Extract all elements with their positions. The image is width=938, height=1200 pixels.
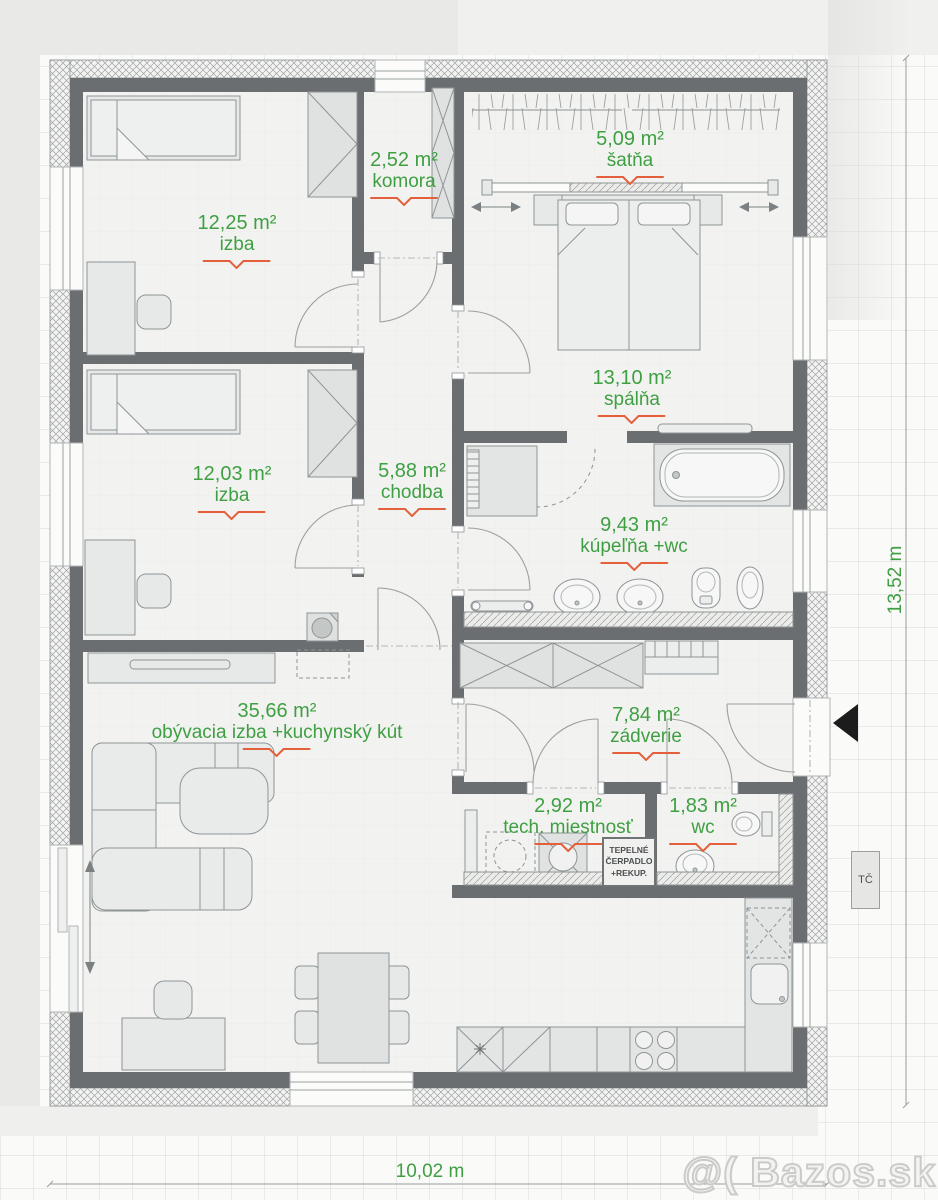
label-underline [599,561,669,571]
terrace-sliding-door [50,845,83,1012]
room-label-wc: 1,83 m² wc [668,795,738,852]
floor-plan-drawing [0,0,938,1200]
room-area: 1,83 m² [668,795,738,817]
room-name: izba [198,235,277,256]
window-izba-1 [50,167,83,290]
label-underline [202,259,272,269]
room-label-zadverie: 7,84 m² zádverie [610,704,682,761]
room-name: spálňa [593,390,672,411]
label-underline [242,747,312,757]
room-name: chodba [377,483,447,504]
outdoor-unit-box: TČ [851,851,880,909]
stove [307,613,338,641]
label-underline [668,842,738,852]
entrance-opening [793,698,830,776]
room-area: 12,03 m² [193,463,272,485]
window-spalna [793,237,827,360]
room-label-izba-2: 12,03 m² izba [193,463,272,520]
label-underline [597,414,667,424]
room-area: 13,10 m² [593,367,672,389]
room-area: 35,66 m² [152,700,403,722]
dimension-height: 13,52 m [885,546,907,615]
kitchen-sink [751,964,788,1004]
room-label-obyvacia: 35,66 m² obývacia izba +kuchynský kút [152,700,403,757]
room-area: 2,92 m² [503,795,633,817]
room-area: 5,88 m² [377,460,447,482]
bidet [737,567,763,609]
room-name: zádverie [610,727,682,748]
window-kitchen [793,943,827,1027]
room-name: wc [668,818,738,839]
room-area: 2,52 m² [369,149,439,171]
outdoor-unit-label: TČ [858,874,873,886]
room-name: šatňa [595,151,665,172]
room-area: 5,09 m² [595,128,665,150]
room-area: 12,25 m² [198,212,277,234]
room-label-chodba: 5,88 m² chodba [377,460,447,517]
dimension-width: 10,02 m [396,1161,465,1183]
room-name: komora [369,172,439,193]
watermark: @( Bazos.sk [682,1149,936,1196]
label-underline [377,507,447,517]
room-name: obývacia izba +kuchynský kút [152,723,403,744]
window-dining-bottom [290,1072,413,1106]
toilet [692,568,720,608]
room-area: 9,43 m² [580,514,687,536]
label-underline [595,175,665,185]
room-label-tech: 2,92 m² tech. miestnosť [503,795,633,852]
equip-line-2: ČERPADLO [604,856,654,867]
label-underline [197,510,267,520]
room-name: tech. miestnosť [503,818,633,839]
label-underline [369,196,439,206]
room-area: 7,84 m² [610,704,682,726]
window-izba-2 [50,443,83,566]
floor-plan-page: 12,25 m² izba 2,52 m² komora 5,09 m² šat… [0,0,938,1200]
room-name: izba [193,486,272,507]
entrance-arrow-icon [833,704,858,742]
room-label-kupelna: 9,43 m² kúpeľňa +wc [580,514,687,571]
room-label-komora: 2,52 m² komora [369,149,439,206]
room-label-satna: 5,09 m² šatňa [595,128,665,185]
label-underline [611,751,681,761]
room-label-izba-1: 12,25 m² izba [198,212,277,269]
wc-toilet [732,812,772,836]
window-komora-top [375,60,425,92]
room-label-spalna: 13,10 m² spálňa [593,367,672,424]
room-name: kúpeľňa +wc [580,537,687,558]
equip-line-3: +REKUP. [604,868,654,879]
label-underline [533,842,603,852]
window-kupelna [793,510,827,592]
